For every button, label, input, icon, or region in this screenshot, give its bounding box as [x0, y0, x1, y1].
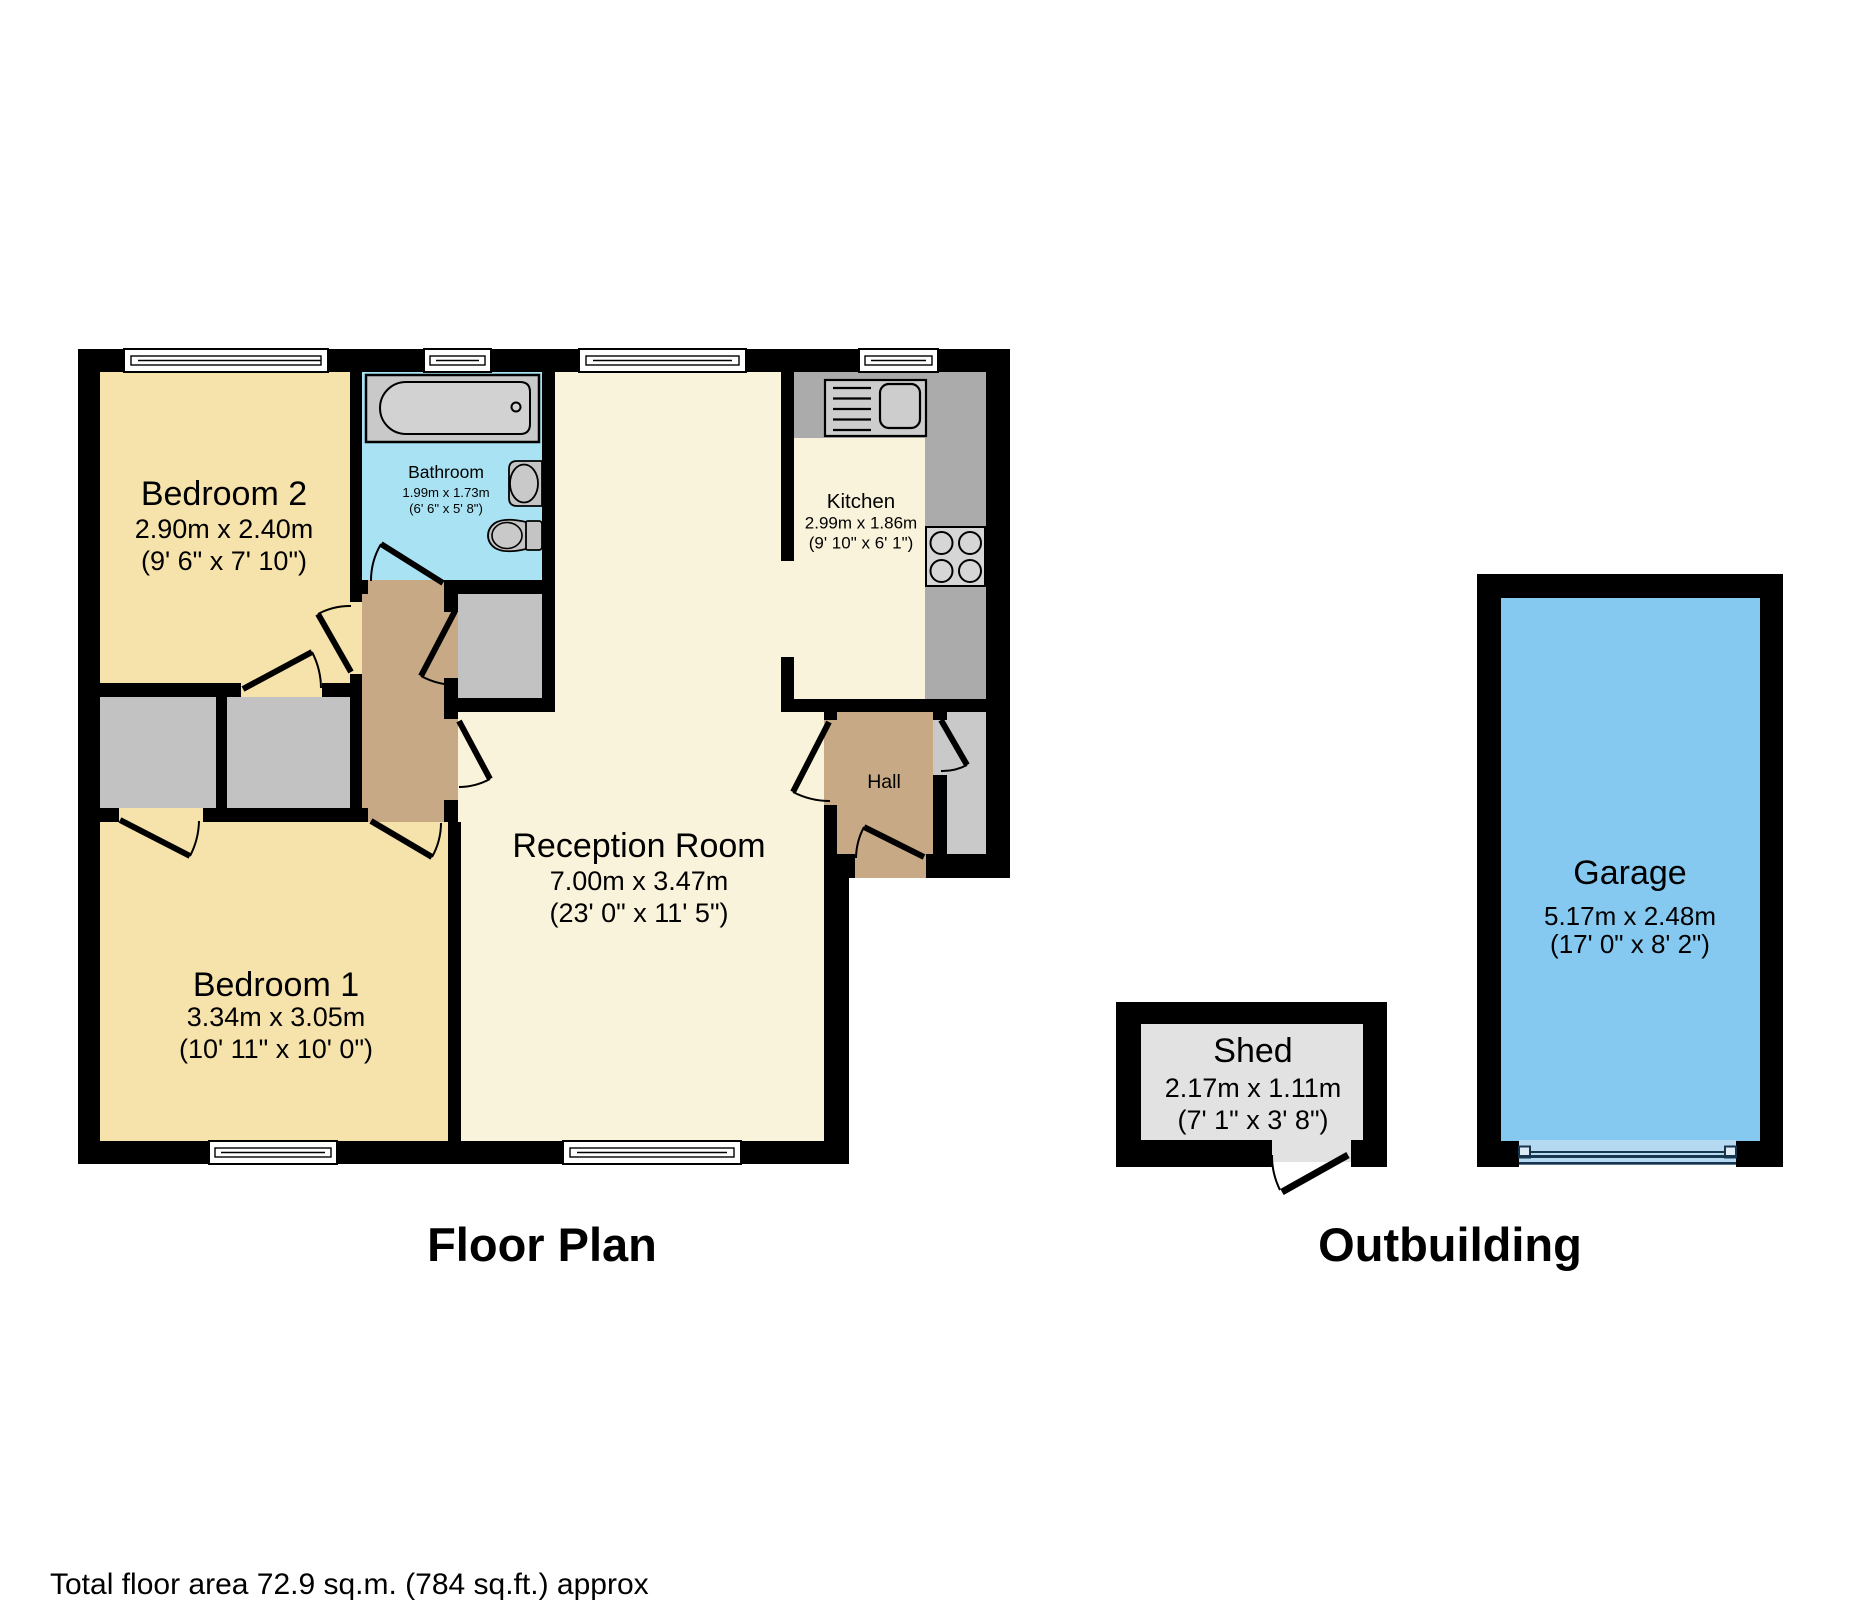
- svg-text:(9' 6" x 7' 10"): (9' 6" x 7' 10"): [141, 546, 307, 576]
- svg-text:Garage: Garage: [1573, 854, 1686, 892]
- svg-text:Bedroom 1: Bedroom 1: [193, 966, 359, 1004]
- svg-text:Kitchen: Kitchen: [827, 490, 895, 513]
- svg-text:5.17m x 2.48m: 5.17m x 2.48m: [1544, 901, 1716, 931]
- svg-text:Shed: Shed: [1213, 1032, 1292, 1070]
- svg-text:(9' 10" x 6' 1"): (9' 10" x 6' 1"): [809, 534, 914, 553]
- svg-text:Hall: Hall: [867, 771, 901, 793]
- svg-text:2.17m x 1.11m: 2.17m x 1.11m: [1165, 1073, 1342, 1103]
- svg-text:Floor Plan: Floor Plan: [427, 1218, 657, 1271]
- svg-text:(17' 0" x 8' 2"): (17' 0" x 8' 2"): [1550, 929, 1710, 959]
- svg-text:Total floor area 72.9 sq.m. (7: Total floor area 72.9 sq.m. (784 sq.ft.)…: [50, 1568, 649, 1601]
- svg-text:Bedroom 2: Bedroom 2: [141, 475, 307, 513]
- svg-text:2.90m x 2.40m: 2.90m x 2.40m: [135, 514, 314, 544]
- svg-text:2.99m x 1.86m: 2.99m x 1.86m: [805, 514, 917, 533]
- svg-text:Bathroom: Bathroom: [408, 462, 484, 482]
- svg-text:(23' 0" x 11' 5"): (23' 0" x 11' 5"): [549, 898, 728, 928]
- svg-text:Outbuilding: Outbuilding: [1318, 1218, 1582, 1271]
- svg-text:(10' 11" x 10' 0"): (10' 11" x 10' 0"): [179, 1034, 373, 1064]
- svg-text:(7' 1" x 3' 8"): (7' 1" x 3' 8"): [1177, 1105, 1328, 1135]
- svg-text:(6' 6" x 5' 8"): (6' 6" x 5' 8"): [409, 501, 483, 516]
- svg-text:Reception Room: Reception Room: [512, 827, 765, 865]
- svg-text:7.00m x 3.47m: 7.00m x 3.47m: [550, 866, 729, 896]
- svg-text:3.34m x 3.05m: 3.34m x 3.05m: [187, 1002, 366, 1032]
- svg-text:1.99m x 1.73m: 1.99m x 1.73m: [402, 485, 489, 500]
